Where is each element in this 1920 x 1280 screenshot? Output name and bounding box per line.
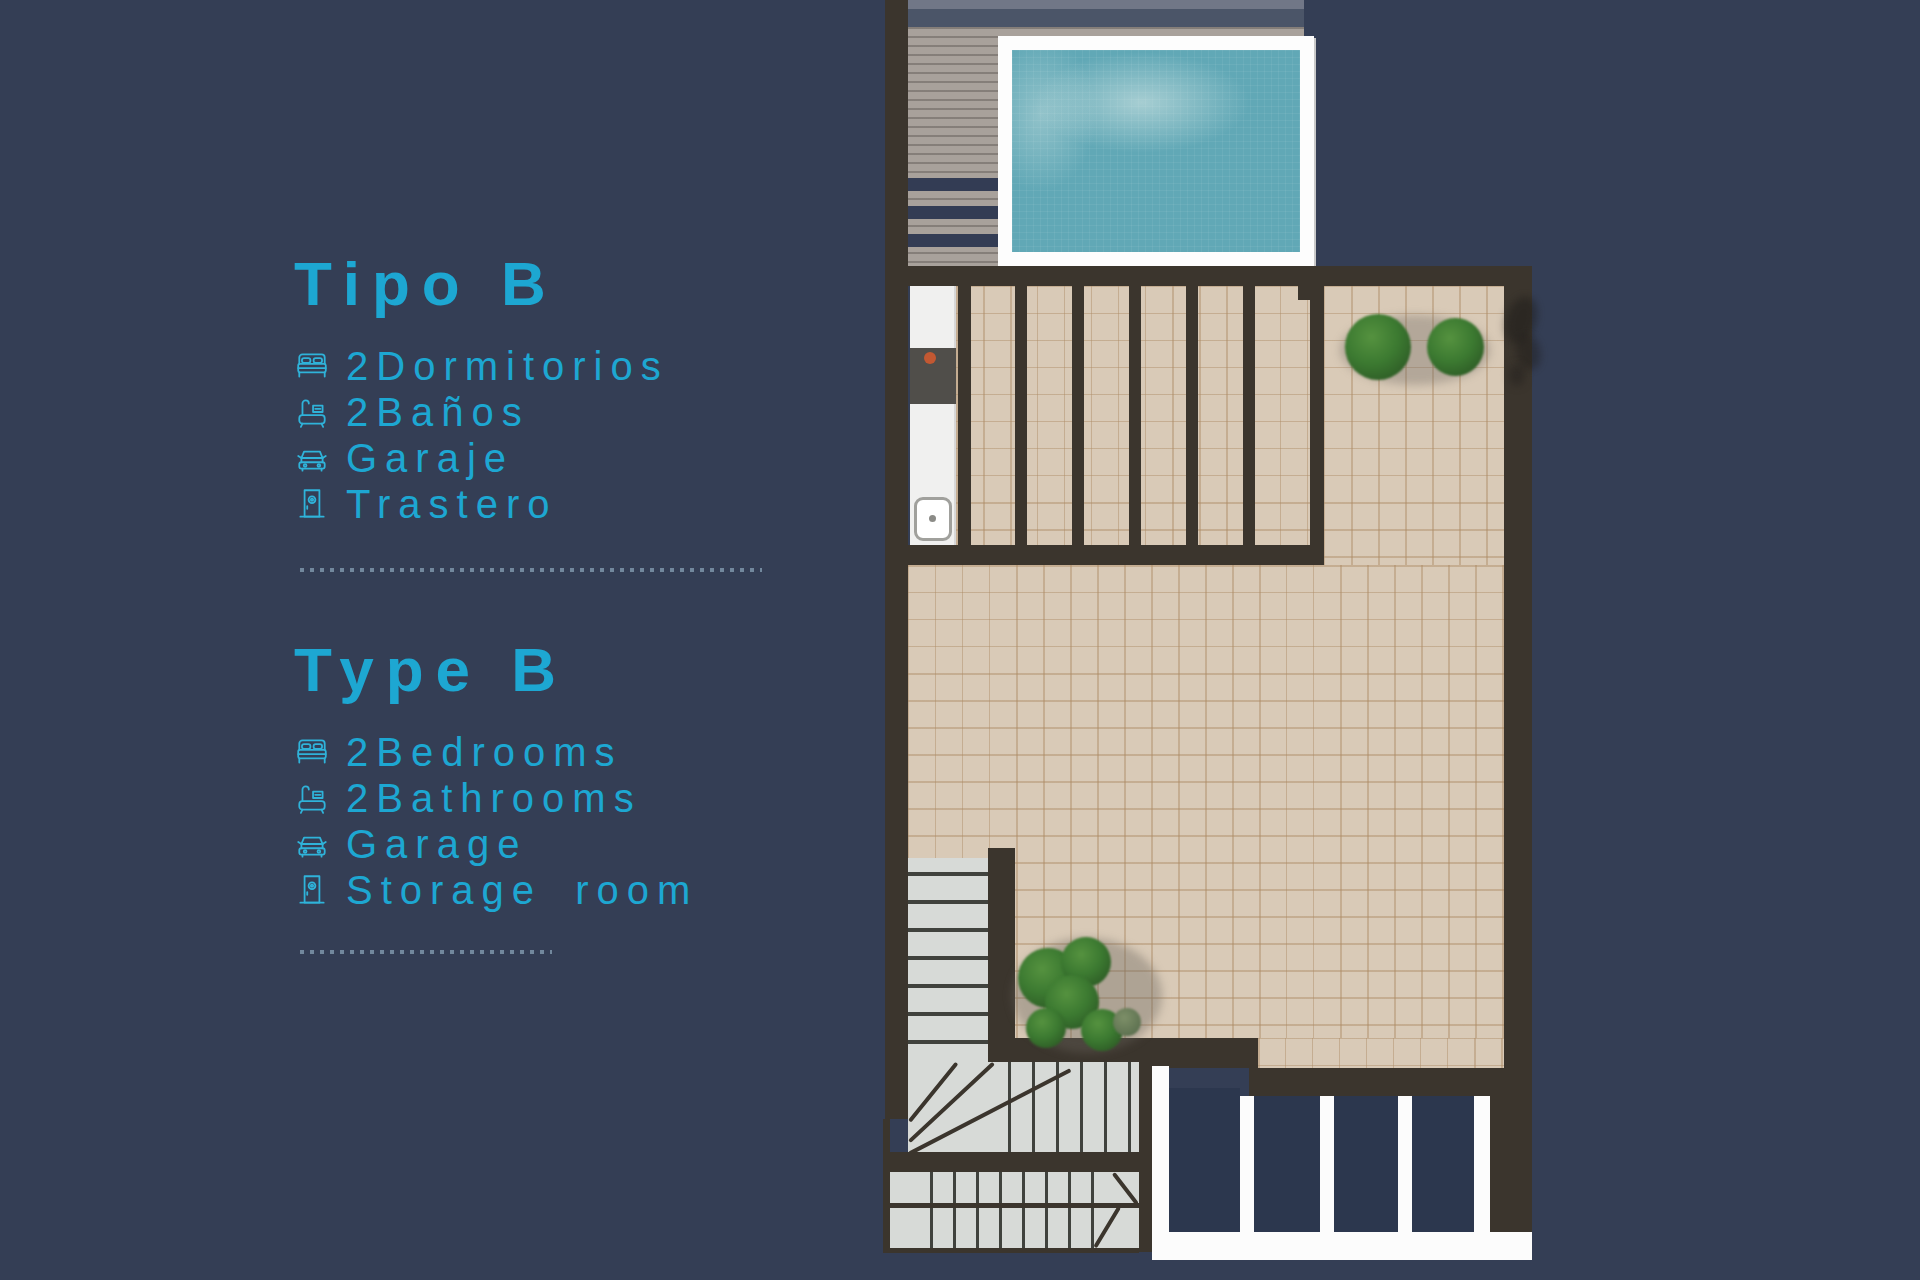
wall-right [1504, 266, 1532, 1068]
staircase-mid-wall [883, 1152, 1139, 1172]
deck-edge-band-dark [908, 9, 1304, 27]
staircase-upper-flight [908, 858, 988, 1062]
cooktop-burner [924, 352, 936, 364]
sink-drain [929, 515, 936, 522]
white-strip-vertical [1152, 1066, 1169, 1260]
white-strip-bottom [1152, 1232, 1532, 1260]
pergola-beam [1129, 286, 1141, 545]
staircase-flight-2-treads [930, 1172, 1105, 1203]
wall-pergola-right [1310, 286, 1324, 565]
wall-corner-block [1490, 1068, 1532, 1232]
pergola-beam [1072, 286, 1084, 545]
lower-level-bay-first [1169, 1088, 1240, 1232]
staircase-winder-treads [1008, 1062, 1139, 1152]
deck-step [908, 178, 998, 191]
wall-stair-divider [1139, 1068, 1153, 1252]
pergola-beam [958, 286, 971, 545]
wall-under-pergola [885, 545, 1324, 565]
bay-divider [1474, 1096, 1490, 1232]
pergola-beam [1015, 286, 1027, 545]
wall-notch [1298, 286, 1324, 300]
terrace-tile-lower [1258, 1038, 1504, 1068]
deck-step [908, 206, 998, 219]
staircase-base-line [883, 1248, 1139, 1253]
staircase-flight-3-treads [930, 1208, 1105, 1248]
planter-bush [1427, 318, 1484, 376]
floorplan [0, 0, 1920, 1280]
bay-divider [1320, 1096, 1334, 1232]
planter-bush [1026, 1008, 1066, 1048]
staircase-left-edge [883, 1119, 890, 1252]
planter-bush-small [1113, 1008, 1141, 1036]
pergola-beam [1186, 286, 1198, 545]
deck-step [908, 234, 998, 247]
staircase-wall-post [988, 848, 1015, 1062]
bay-divider [1240, 1096, 1254, 1232]
pergola-beam [1243, 286, 1255, 545]
planter-bush [1345, 314, 1411, 380]
deck-edge-band-light [908, 0, 1304, 9]
bay-divider [1398, 1096, 1412, 1232]
tree-shadow [1509, 364, 1525, 386]
swimming-pool [1012, 50, 1300, 252]
wall-top [885, 266, 1532, 286]
